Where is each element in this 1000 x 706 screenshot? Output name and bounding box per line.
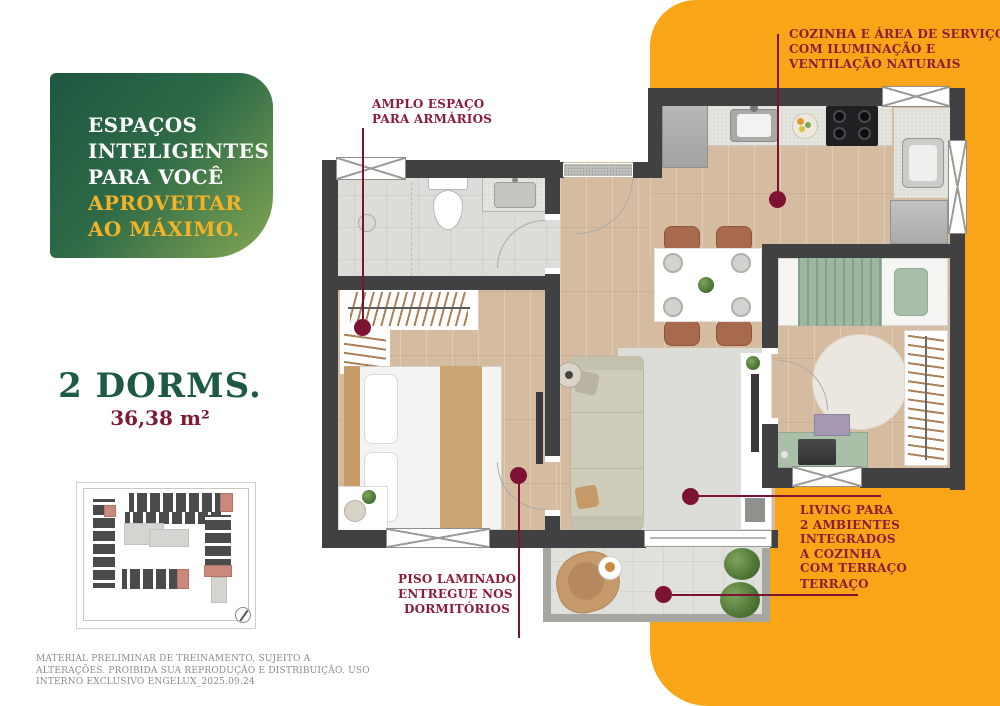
- entry-doormat: [563, 163, 633, 177]
- headline-line-5: AO MÁXIMO.: [88, 216, 269, 242]
- dining-chair-3: [664, 320, 700, 346]
- console-plant: [746, 356, 760, 370]
- bed2-blanket: [798, 258, 882, 326]
- highlighted-unit-2: [220, 493, 233, 512]
- compass-icon: [235, 607, 251, 623]
- shower-head-icon: [358, 214, 376, 232]
- headline-line-3: PARA VOCÊ: [88, 164, 269, 190]
- flooring-callout-dot: [510, 467, 527, 484]
- terrace-sliding-door-track: [650, 537, 766, 539]
- wardrobe-rod: [348, 307, 470, 309]
- flooring-callout-line-2: ENTREGUE NOS: [398, 587, 510, 602]
- bathroom-sink: [494, 182, 536, 208]
- bedroom2-door-frame-2: [762, 418, 778, 424]
- laundry-tank-basin: [909, 145, 937, 181]
- sofa-cushion-seam-1: [572, 412, 642, 413]
- living-callout-line-3: INTEGRADOS: [800, 532, 907, 547]
- bedroom1-tv: [536, 392, 543, 464]
- kitchen-window: [882, 86, 950, 107]
- toilet-tank: [428, 176, 468, 190]
- closet-callout-dot: [354, 319, 371, 336]
- flooring-callout-line-1: PISO LAMINADO: [398, 572, 510, 587]
- bedroom1-door-frame-1: [545, 456, 560, 462]
- flooring-callout-line: [518, 484, 520, 638]
- living-callout-line: [691, 495, 881, 497]
- wall-bath-bedroom1: [338, 276, 560, 290]
- washing-machine: [890, 200, 948, 244]
- burner-3: [833, 127, 846, 140]
- terrace-callout: TERRAÇO: [800, 577, 869, 592]
- headline-box: ESPAÇOS INTELIGENTES PARA VOCÊ APROVEITA…: [50, 73, 273, 258]
- bedroom1-window: [386, 528, 490, 548]
- bedside-plant: [362, 490, 376, 504]
- fridge: [662, 104, 708, 168]
- living-callout-line-1: LIVING PARA: [800, 503, 907, 518]
- book-stack: [814, 414, 850, 436]
- headline-line-1: ESPAÇOS: [88, 112, 269, 138]
- terrace-wall-left: [543, 548, 551, 622]
- closet-callout-line: [362, 128, 364, 328]
- unit-area: 36,38 m²: [40, 406, 280, 430]
- flooring-callout: PISO LAMINADO ENTREGUE NOS DORMITÓRIOS: [398, 572, 510, 617]
- sofa-pillow-2: [574, 484, 599, 509]
- bed1-runner: [440, 366, 482, 530]
- highlighted-unit-1: [104, 505, 116, 517]
- burner-4: [858, 127, 871, 140]
- headline-line-2: INTELIGENTES: [88, 138, 269, 164]
- terrace-wall-right: [762, 548, 770, 622]
- living-callout-line-4: A COZINHA: [800, 547, 907, 562]
- fruit-yellow: [799, 126, 805, 132]
- wall-mid-center: [545, 268, 560, 462]
- place-setting-1: [663, 253, 683, 273]
- flooring-callout-line-3: DORMITÓRIOS: [398, 602, 510, 617]
- bath-door-frame-2: [545, 268, 560, 274]
- wall-bedroom2-bottom-left: [762, 468, 794, 488]
- fruit-orange: [797, 118, 804, 125]
- wall-living-bottom-left: [556, 530, 646, 548]
- wall-left: [322, 160, 338, 548]
- living-callout-line-5: COM TERRAÇO: [800, 561, 907, 576]
- bathroom-window: [336, 157, 406, 180]
- wall-kitchen-top: [648, 88, 884, 106]
- kitchen-callout-dot: [769, 191, 786, 208]
- dining-chair-4: [716, 320, 752, 346]
- living-callout-dot: [682, 488, 699, 505]
- shower-divider: [411, 182, 412, 276]
- bedside-lamp: [344, 500, 366, 522]
- wall-bedroom2-bottom-right: [860, 468, 965, 488]
- wall-bedroom2-left-upper: [762, 258, 778, 354]
- laptop: [798, 439, 836, 465]
- burner-1: [833, 110, 846, 123]
- terrace-plant-2: [720, 582, 760, 618]
- console-decor: [745, 498, 765, 522]
- wall-right-upper: [950, 88, 965, 142]
- bedroom2-door-frame-1: [762, 348, 778, 354]
- site-path: [211, 577, 227, 603]
- living-callout-line-2: 2 AMBIENTES: [800, 518, 907, 533]
- site-keyplan: [76, 482, 256, 629]
- marketing-flyer: ESPAÇOS INTELIGENTES PARA VOCÊ APROVEITA…: [0, 0, 1000, 706]
- desk-mouse: [780, 450, 789, 459]
- tv-screen: [751, 374, 759, 452]
- highlighted-unit-4: [177, 569, 189, 589]
- terrace-plant-1: [724, 548, 760, 580]
- wardrobe-side-hangers: [344, 334, 386, 370]
- closet-callout-line-2: PARA ARMÁRIOS: [372, 112, 492, 127]
- unit-type-title: 2 DORMS.: [40, 366, 280, 406]
- headline-line-4: APROVEITAR: [88, 190, 269, 216]
- clothes-rack-rod: [925, 336, 927, 460]
- table-centerpiece-plant: [698, 277, 714, 293]
- service-window: [948, 140, 967, 234]
- closet-callout-line-1: AMPLO ESPAÇO: [372, 97, 492, 112]
- living-callout: LIVING PARA 2 AMBIENTES INTEGRADOS A COZ…: [800, 503, 907, 576]
- place-setting-2: [731, 253, 751, 273]
- amenity-block-2: [149, 529, 189, 547]
- highlighted-unit-3: [204, 565, 232, 577]
- fruit-green: [805, 122, 811, 128]
- kitchen-sink-basin: [737, 114, 771, 137]
- disclaimer-text: MATERIAL PRELIMINAR DE TREINAMENTO, SUJE…: [36, 654, 382, 689]
- bath-door-frame-1: [545, 214, 560, 220]
- kitchen-callout-line-2: COM ILUMINAÇÃO E: [789, 42, 1000, 57]
- kitchen-callout-line-3: VENTILAÇÃO NATURAIS: [789, 57, 1000, 72]
- terrace-callout-line: [672, 594, 858, 596]
- terrace-callout-dot: [655, 586, 672, 603]
- floor-lamp-core: [565, 371, 573, 379]
- closet-callout: AMPLO ESPAÇO PARA ARMÁRIOS: [372, 97, 492, 127]
- bedroom2-window: [792, 466, 862, 487]
- bedroom1-door-frame-2: [545, 510, 560, 516]
- burner-2: [858, 110, 871, 123]
- kitchen-callout-line-1: COZINHA E ÁREA DE SERVIÇO: [789, 27, 1000, 42]
- kitchen-callout: COZINHA E ÁREA DE SERVIÇO COM ILUMINAÇÃO…: [789, 27, 1000, 72]
- wall-right: [950, 232, 965, 490]
- sofa-armrest-bottom: [570, 516, 644, 530]
- place-setting-3: [663, 297, 683, 317]
- building-wing-north: [129, 493, 233, 512]
- sofa-cushion-seam-2: [572, 468, 642, 469]
- bed2-pillow: [894, 268, 928, 316]
- wall-kitchen-bedroom2: [762, 244, 965, 258]
- terrace-cup: [605, 562, 615, 572]
- place-setting-4: [731, 297, 751, 317]
- kitchen-callout-line: [777, 34, 779, 200]
- bed1-pillow-1: [364, 374, 398, 444]
- sofa-armrest-top: [570, 356, 644, 370]
